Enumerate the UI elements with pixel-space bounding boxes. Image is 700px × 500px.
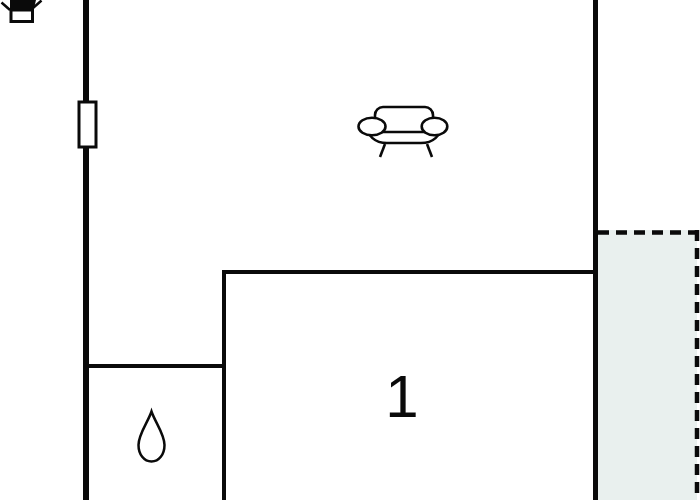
bathroom-top-wall <box>83 364 226 368</box>
window-icon <box>79 102 96 147</box>
left-exterior-wall <box>83 0 89 500</box>
right-exterior-wall <box>593 0 598 500</box>
room1-top-wall <box>222 270 598 274</box>
water-drop-icon <box>139 412 165 462</box>
floor-plan-drawing: 1 <box>0 0 700 500</box>
stove-icon <box>2 0 42 22</box>
floor-plan: 1 <box>0 0 700 500</box>
terrace-area <box>598 230 697 500</box>
sofa-icon <box>359 107 448 157</box>
room1-left-wall <box>222 270 226 500</box>
room1-label: 1 <box>385 363 418 430</box>
